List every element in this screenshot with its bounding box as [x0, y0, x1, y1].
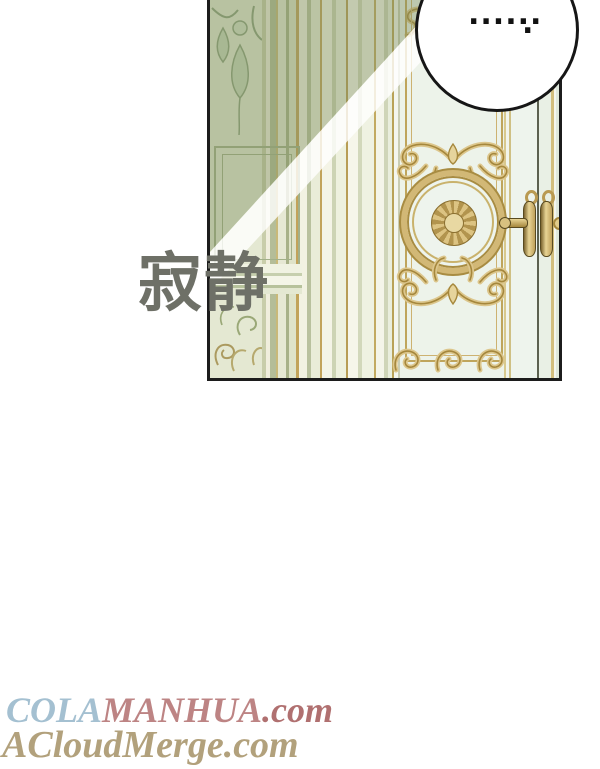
- key-icon: [553, 217, 562, 230]
- handle-plate-left: [523, 201, 536, 257]
- bubble-trailing-dot: .: [522, 9, 533, 39]
- page: ...... . 寂静 COLAMANHUA.com ACloudMerge.c…: [0, 0, 600, 769]
- sfx-text: 寂静: [138, 252, 270, 316]
- watermark-colamanhua: COLAMANHUA.com: [6, 692, 333, 728]
- watermark-acloudmerge: ACloudMerge.com: [2, 726, 299, 764]
- handle-lever: [502, 218, 528, 228]
- handle-plate-right: [540, 201, 553, 257]
